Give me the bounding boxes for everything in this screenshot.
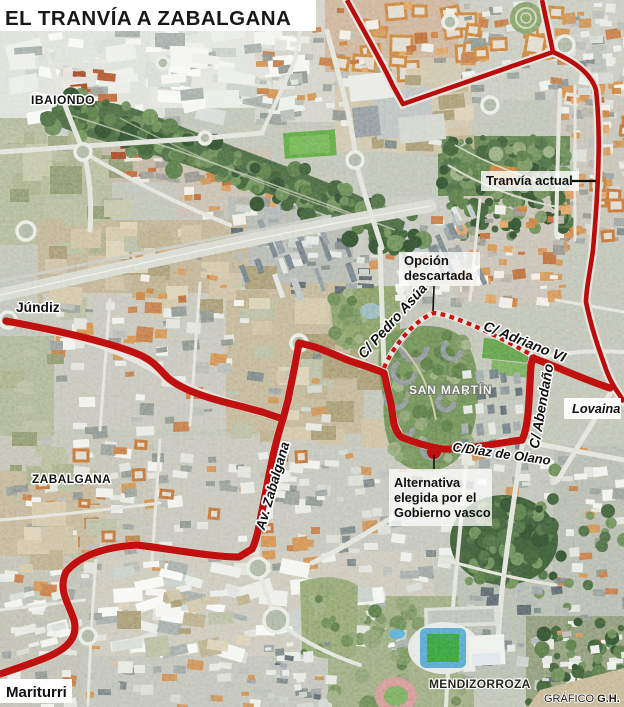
svg-text:Opción: Opción — [404, 253, 449, 268]
svg-text:Alternativa: Alternativa — [394, 475, 461, 490]
svg-text:Lovaina: Lovaina — [572, 401, 620, 416]
svg-text:ZABALGANA: ZABALGANA — [32, 472, 111, 486]
svg-text:GRÁFICO G.H.: GRÁFICO G.H. — [544, 692, 620, 705]
svg-text:descartada: descartada — [404, 268, 473, 283]
svg-text:Tranvía actual: Tranvía actual — [486, 173, 573, 188]
svg-text:EL TRANVÍA A ZABALGANA: EL TRANVÍA A ZABALGANA — [5, 7, 291, 30]
svg-text:IBAIONDO: IBAIONDO — [31, 93, 95, 107]
svg-text:SAN MARTÍN: SAN MARTÍN — [409, 382, 492, 397]
svg-text:Gobierno vasco: Gobierno vasco — [394, 505, 491, 520]
svg-text:elegida por el: elegida por el — [394, 490, 477, 505]
svg-text:Júndiz: Júndiz — [16, 300, 60, 315]
svg-text:MENDIZORROZA: MENDIZORROZA — [429, 677, 531, 691]
svg-text:Mariturri: Mariturri — [6, 684, 67, 701]
